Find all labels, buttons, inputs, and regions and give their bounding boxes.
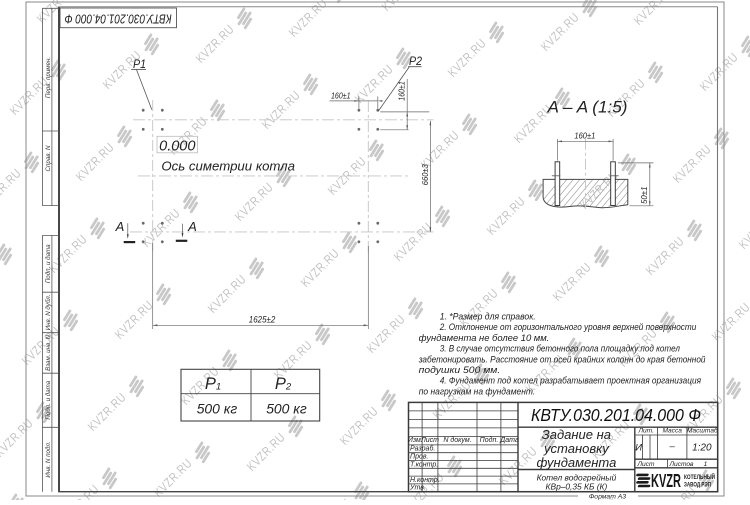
svg-text:Подп. и дата: Подп. и дата: [45, 380, 52, 419]
svg-text:Подп. и дата: Подп. и дата: [45, 244, 52, 283]
svg-text:4. Фундамент под котел разраба: 4. Фундамент под котел разрабатывает про…: [440, 375, 701, 386]
svg-text:Утв.: Утв.: [409, 485, 426, 492]
svg-text:Инв. N подл.: Инв. N подл.: [45, 441, 52, 477]
svg-text:500 кг: 500 кг: [197, 401, 238, 417]
svg-text:0.000: 0.000: [159, 138, 195, 154]
svg-text:Разраб.: Разраб.: [410, 445, 435, 453]
svg-text:Взам. инв. N: Взам. инв. N: [45, 334, 52, 371]
svg-text:фундамента не более 10 мм.: фундамента не более 10 мм.: [419, 332, 550, 343]
svg-text:КВТУ.030.201.04.000 Ф: КВТУ.030.201.04.000 Ф: [531, 405, 701, 425]
svg-text:И: И: [635, 442, 642, 453]
svg-text:160±1: 160±1: [574, 130, 595, 140]
svg-text:A – A (1:5): A – A (1:5): [546, 99, 627, 117]
svg-text:по нагрузкам на фундамент.: по нагрузкам на фундамент.: [419, 385, 536, 396]
svg-text:P2: P2: [409, 54, 422, 68]
svg-text:1:20: 1:20: [692, 442, 712, 453]
svg-text:Т.контр.: Т.контр.: [410, 461, 438, 468]
svg-text:KVZR: KVZR: [651, 470, 681, 491]
svg-text:КОТЕЛЬНЫЙ: КОТЕЛЬНЫЙ: [684, 473, 715, 481]
svg-text:50±1: 50±1: [639, 187, 649, 205]
svg-text:Лист: Лист: [420, 437, 439, 444]
svg-text:Н.контр.: Н.контр.: [410, 477, 440, 484]
svg-text:Задание на: Задание на: [542, 427, 611, 442]
svg-text:фундамента: фундамента: [536, 455, 616, 470]
svg-text:660±3: 660±3: [420, 164, 430, 185]
svg-text:3. В случае отсутствия бетонно: 3. В случае отсутствия бетонного пола пл…: [440, 343, 681, 354]
svg-text:Дата: Дата: [499, 437, 519, 444]
svg-text:1. *Размер для справок.: 1. *Размер для справок.: [440, 311, 536, 322]
svg-text:Справ. N: Справ. N: [45, 145, 52, 171]
svg-text:Инв. N дубл.: Инв. N дубл.: [45, 294, 52, 330]
svg-text:Формат А3: Формат А3: [589, 493, 626, 500]
svg-text:подушки 500 мм.: подушки 500 мм.: [419, 364, 501, 375]
svg-text:установку: установку: [543, 441, 610, 456]
svg-text:Листов: Листов: [668, 461, 694, 468]
svg-text:КВр–0,35 КБ (К): КВр–0,35 КБ (К): [546, 481, 608, 491]
svg-text:Лист: Лист: [637, 461, 655, 468]
svg-text:Перв. примен.: Перв. примен.: [45, 57, 52, 98]
svg-text:ЗАВОД РЭП: ЗАВОД РЭП: [684, 483, 711, 489]
svg-text:Подп.: Подп.: [480, 436, 499, 444]
svg-text:500 кг: 500 кг: [266, 401, 307, 417]
svg-text:забетонировать. Расстояние от: забетонировать. Расстояние от осей крайн…: [418, 353, 706, 364]
svg-text:Лит.: Лит.: [637, 428, 654, 435]
svg-text:160±1: 160±1: [398, 81, 407, 101]
svg-text:1625±2: 1625±2: [249, 314, 276, 324]
svg-text:A: A: [115, 219, 125, 234]
svg-text:Ось симетрии котла: Ось симетрии котла: [161, 159, 295, 174]
svg-text:A: A: [187, 219, 197, 234]
svg-text:–: –: [670, 441, 676, 452]
svg-text:КВТУ.030.201.04.000 Ф: КВТУ.030.201.04.000 Ф: [65, 12, 172, 27]
svg-text:Масштаб: Масштаб: [687, 427, 718, 435]
svg-text:1: 1: [704, 461, 708, 468]
svg-text:Масса: Масса: [662, 428, 682, 435]
svg-text:2. Отклонение от горизонтально: 2. Отклонение от горизонтального уровня …: [439, 321, 697, 332]
svg-text:N докум.: N докум.: [443, 436, 471, 444]
svg-text:Пров.: Пров.: [410, 454, 429, 461]
svg-text:P1: P1: [133, 57, 146, 71]
svg-text:160±1: 160±1: [331, 91, 351, 100]
